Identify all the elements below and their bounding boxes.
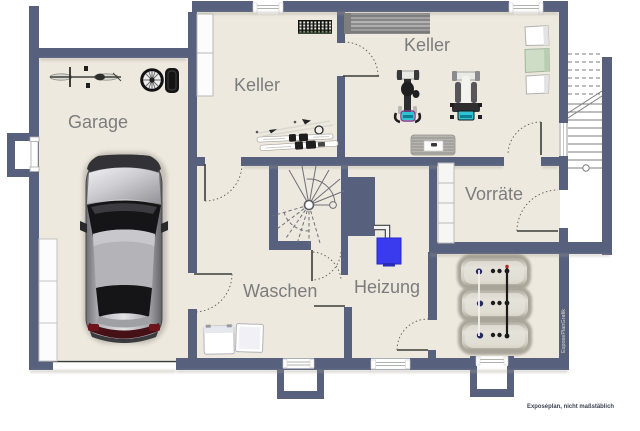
svg-text:Exposéplan, nicht maßstäblich: Exposéplan, nicht maßstäblich xyxy=(527,403,614,410)
svg-text:Keller: Keller xyxy=(234,75,280,95)
svg-text:Garage: Garage xyxy=(68,112,128,132)
svg-text:Waschen: Waschen xyxy=(243,281,317,301)
svg-text:Keller: Keller xyxy=(404,35,450,55)
svg-text:Vorräte: Vorräte xyxy=(465,184,523,204)
svg-text:Heizung: Heizung xyxy=(354,277,420,297)
svg-text:ExposePlanGrafik: ExposePlanGrafik xyxy=(561,309,567,353)
